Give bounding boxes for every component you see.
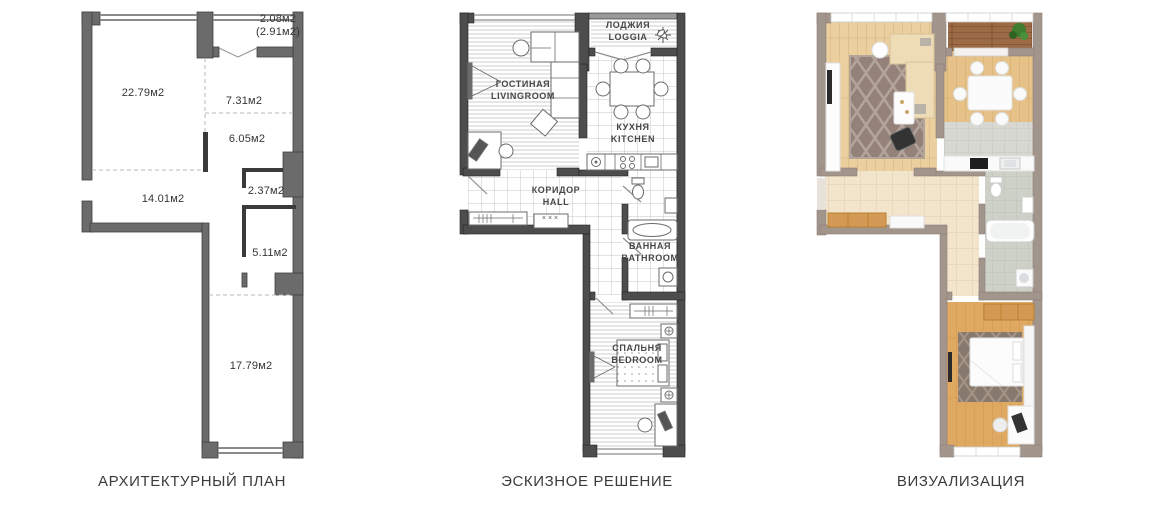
area-label-corridor-upper: 7.31м2 — [202, 95, 286, 108]
nightstand-bottom — [661, 388, 677, 402]
loggia-gross-area: (2.91м2) — [236, 26, 320, 39]
render-toilet — [990, 177, 1002, 197]
washing-machine — [659, 268, 677, 286]
panel-visualization — [812, 8, 1047, 463]
render-bedroom-wardrobe — [984, 304, 1034, 320]
loggia-net-area: 2.08м2 — [236, 13, 320, 26]
render-washer — [1016, 269, 1033, 287]
render-cabinet-left — [826, 63, 840, 171]
floor-plan-sheet: 2.08м2 (2.91м2) 22.79м2 7.31м2 6.05м2 2.… — [0, 0, 1175, 509]
render-coffee-table — [894, 92, 914, 124]
panel-sketch-plan: ЛОДЖИЯ LOGGIA ГОСТИНАЯ LIVINGROOM КУХНЯ … — [455, 8, 690, 463]
area-label-storage: 5.11м2 — [228, 247, 312, 260]
balcony-door-swing — [219, 48, 257, 57]
toilet — [632, 178, 644, 199]
panel-architectural-plan: 2.08м2 (2.91м2) 22.79м2 7.31м2 6.05м2 2.… — [70, 5, 315, 465]
caption-sketch-plan: ЭСКИЗНОЕ РЕШЕНИЕ — [437, 473, 737, 490]
caption-architectural-plan: АРХИТЕКТУРНЫЙ ПЛАН — [42, 473, 342, 490]
bathtub — [628, 220, 677, 240]
render-bench — [890, 216, 924, 228]
room-label-bathroom: ВАННАЯ BATHROOM — [602, 241, 698, 264]
floor-lamp — [513, 40, 529, 56]
sink-icon — [645, 157, 658, 167]
render-hall-wardrobe — [828, 213, 886, 227]
kitchen-counter — [587, 154, 677, 170]
hall-wardrobe — [469, 212, 527, 225]
render-side-table — [872, 42, 888, 58]
visualization-render — [812, 8, 1047, 463]
area-label-corridor-lower: 6.05м2 — [205, 133, 289, 146]
room-label-hall: КОРИДОР HALL — [508, 185, 604, 208]
shoe-rack-marks: ××× — [531, 215, 571, 222]
area-label-bedroom: 17.79м2 — [209, 360, 293, 373]
area-label-hall: 14.01м2 — [121, 193, 205, 206]
render-kitchen-counter — [944, 156, 1034, 171]
caption-visualization: ВИЗУАЛИЗАЦИЯ — [811, 473, 1111, 490]
room-label-kitchen: КУХНЯ KITCHEN — [585, 122, 681, 145]
window-lines — [100, 14, 293, 454]
render-bed — [958, 332, 1028, 402]
architectural-plan-drawing — [70, 5, 315, 465]
sketch-plan-drawing — [455, 8, 690, 463]
nightstand-top — [661, 324, 677, 338]
render-bath-sink — [1022, 197, 1033, 213]
area-label-closet: 2.37м2 — [224, 185, 308, 198]
wc-sink — [665, 198, 677, 213]
room-label-loggia: ЛОДЖИЯ LOGGIA — [580, 20, 676, 43]
render-bedroom-tv — [948, 352, 952, 382]
room-label-bedroom: СПАЛЬНЯ BEDROOM — [589, 343, 685, 366]
render-bathtub — [986, 220, 1034, 242]
area-label-loggia: 2.08м2 (2.91м2) — [236, 13, 320, 39]
room-label-living: ГОСТИНАЯ LIVINGROOM — [475, 79, 571, 102]
render-shelf — [1024, 326, 1034, 406]
outer-walls — [82, 12, 303, 458]
area-label-living: 22.79м2 — [101, 87, 185, 100]
bedroom-wardrobe — [630, 304, 677, 318]
